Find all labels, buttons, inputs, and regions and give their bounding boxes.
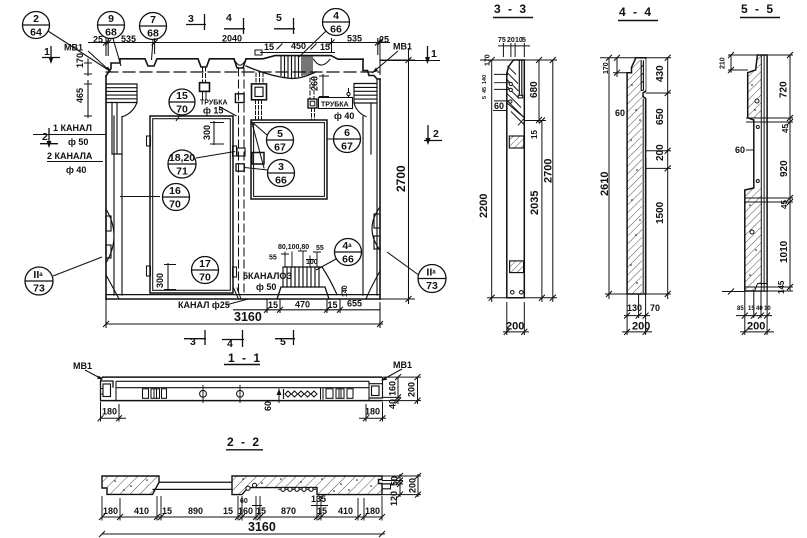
svg-text:МВ1: МВ1 xyxy=(73,361,92,371)
svg-text:МВ1: МВ1 xyxy=(393,42,412,52)
svg-text:535: 535 xyxy=(121,34,136,44)
svg-text:680: 680 xyxy=(529,81,540,98)
svg-text:70: 70 xyxy=(169,199,181,211)
svg-text:25: 25 xyxy=(93,35,103,45)
svg-text:3: 3 xyxy=(188,13,194,25)
svg-text:60: 60 xyxy=(735,145,745,155)
svg-text:15: 15 xyxy=(162,506,172,516)
svg-text:3: 3 xyxy=(190,336,196,348)
svg-text:200: 200 xyxy=(506,321,524,333)
svg-text:6: 6 xyxy=(344,127,350,139)
svg-text:170: 170 xyxy=(603,62,610,74)
svg-text:1: 1 xyxy=(44,46,50,58)
svg-text:15: 15 xyxy=(176,90,188,102)
svg-text:15: 15 xyxy=(530,130,539,139)
svg-text:1 - 1: 1 - 1 xyxy=(228,351,262,365)
svg-text:15: 15 xyxy=(268,300,278,310)
svg-text:2610: 2610 xyxy=(599,172,611,196)
svg-text:2200: 2200 xyxy=(478,194,490,218)
svg-text:60: 60 xyxy=(240,498,248,505)
svg-text:170: 170 xyxy=(485,54,492,66)
svg-text:МВ1: МВ1 xyxy=(393,360,412,370)
svg-text:465: 465 xyxy=(75,88,85,103)
svg-text:430: 430 xyxy=(655,65,666,82)
svg-text:4: 4 xyxy=(333,10,339,22)
svg-text:5: 5 xyxy=(276,12,282,24)
svg-text:1 КАНАЛ: 1 КАНАЛ xyxy=(53,123,92,133)
svg-text:1010: 1010 xyxy=(779,240,790,263)
svg-text:180: 180 xyxy=(102,407,117,417)
svg-text:40: 40 xyxy=(388,399,398,409)
svg-text:5: 5 xyxy=(482,96,488,99)
svg-text:140: 140 xyxy=(482,75,488,84)
svg-text:170: 170 xyxy=(75,53,85,68)
svg-text:66: 66 xyxy=(330,24,342,36)
svg-text:4: 4 xyxy=(226,12,232,24)
svg-text:25: 25 xyxy=(379,35,389,45)
svg-text:2035: 2035 xyxy=(529,191,541,215)
svg-text:210: 210 xyxy=(720,57,727,69)
svg-text:60: 60 xyxy=(494,101,504,111)
svg-text:3160: 3160 xyxy=(234,310,262,324)
svg-text:68: 68 xyxy=(105,27,117,39)
svg-text:450: 450 xyxy=(291,41,306,51)
svg-text:55: 55 xyxy=(269,255,277,262)
svg-text:920: 920 xyxy=(779,160,790,177)
svg-text:5КАНАЛОЗ: 5КАНАЛОЗ xyxy=(243,271,292,281)
svg-text:75: 75 xyxy=(498,37,506,44)
svg-text:3 - 3: 3 - 3 xyxy=(494,2,528,16)
svg-text:67: 67 xyxy=(341,141,353,153)
svg-text:IIa: IIa xyxy=(33,269,43,281)
svg-text:200: 200 xyxy=(632,321,650,333)
svg-text:85: 85 xyxy=(737,306,744,312)
svg-text:1500: 1500 xyxy=(655,201,666,224)
svg-text:15: 15 xyxy=(748,306,755,312)
svg-text:470: 470 xyxy=(295,300,310,310)
svg-text:73: 73 xyxy=(426,280,438,292)
svg-text:5: 5 xyxy=(277,128,283,140)
svg-text:15: 15 xyxy=(256,506,266,516)
svg-text:145: 145 xyxy=(777,280,786,294)
svg-text:2040: 2040 xyxy=(222,34,242,44)
svg-text:ф 40: ф 40 xyxy=(66,165,86,175)
svg-text:2: 2 xyxy=(33,13,39,25)
svg-text:15: 15 xyxy=(317,506,327,516)
svg-text:45: 45 xyxy=(780,200,789,209)
svg-text:68: 68 xyxy=(147,28,159,40)
svg-text:71: 71 xyxy=(176,166,188,178)
svg-text:64: 64 xyxy=(30,27,42,39)
svg-text:15: 15 xyxy=(320,42,330,52)
svg-text:20: 20 xyxy=(507,37,515,44)
svg-text:15: 15 xyxy=(223,506,233,516)
svg-text:18,20: 18,20 xyxy=(169,152,195,164)
svg-text:5: 5 xyxy=(522,37,526,44)
svg-text:120: 120 xyxy=(389,491,399,506)
svg-text:160: 160 xyxy=(388,381,398,396)
svg-text:66: 66 xyxy=(342,254,354,266)
svg-text:410: 410 xyxy=(338,506,353,516)
svg-text:2: 2 xyxy=(433,128,439,140)
svg-text:50: 50 xyxy=(390,476,400,486)
svg-text:180: 180 xyxy=(103,506,118,516)
svg-text:5: 5 xyxy=(280,336,286,348)
svg-text:300: 300 xyxy=(202,125,212,140)
svg-text:IIa: IIa xyxy=(426,267,436,279)
svg-text:4a: 4a xyxy=(342,240,352,252)
svg-text:200: 200 xyxy=(655,144,666,161)
svg-text:890: 890 xyxy=(188,506,203,516)
svg-text:40: 40 xyxy=(756,306,763,312)
svg-text:3160: 3160 xyxy=(248,520,276,534)
svg-text:КАНАЛ ф25: КАНАЛ ф25 xyxy=(178,300,230,310)
svg-text:870: 870 xyxy=(281,506,296,516)
svg-text:2 - 2: 2 - 2 xyxy=(227,435,261,449)
svg-text:55: 55 xyxy=(316,245,324,252)
svg-text:2700: 2700 xyxy=(543,159,555,183)
svg-text:180: 180 xyxy=(365,506,380,516)
svg-text:140: 140 xyxy=(342,285,349,297)
svg-text:2700: 2700 xyxy=(394,165,408,192)
svg-text:200: 200 xyxy=(407,382,417,397)
svg-text:1: 1 xyxy=(431,48,437,60)
svg-text:ф 50: ф 50 xyxy=(68,137,88,147)
svg-text:535: 535 xyxy=(347,34,362,44)
svg-text:200: 200 xyxy=(747,321,765,333)
svg-text:67: 67 xyxy=(274,142,286,154)
svg-text:16: 16 xyxy=(169,185,181,197)
svg-text:17: 17 xyxy=(199,258,211,270)
svg-text:73: 73 xyxy=(33,283,45,295)
svg-text:70: 70 xyxy=(650,303,660,313)
svg-text:15: 15 xyxy=(328,300,338,310)
svg-text:650: 650 xyxy=(655,108,666,125)
svg-text:7: 7 xyxy=(150,14,156,26)
svg-text:45: 45 xyxy=(781,124,790,133)
svg-text:160: 160 xyxy=(238,506,253,516)
svg-text:130: 130 xyxy=(627,303,642,313)
svg-text:70: 70 xyxy=(176,104,188,116)
svg-text:410: 410 xyxy=(134,506,149,516)
svg-text:300: 300 xyxy=(155,273,165,288)
svg-text:60: 60 xyxy=(615,108,625,118)
svg-text:2 КАНАЛА: 2 КАНАЛА xyxy=(47,151,93,161)
svg-text:655: 655 xyxy=(347,299,362,309)
svg-text:60: 60 xyxy=(263,401,273,411)
svg-text:ТРУБКА: ТРУБКА xyxy=(321,102,349,109)
svg-text:ф 50: ф 50 xyxy=(256,282,276,292)
svg-text:10: 10 xyxy=(764,306,771,312)
svg-text:260: 260 xyxy=(310,76,320,91)
svg-text:4 - 4: 4 - 4 xyxy=(619,5,653,19)
svg-text:100: 100 xyxy=(306,259,318,266)
svg-text:15: 15 xyxy=(264,42,274,52)
svg-text:180: 180 xyxy=(365,407,380,417)
svg-text:720: 720 xyxy=(779,81,790,98)
svg-text:66: 66 xyxy=(275,175,287,187)
svg-text:135: 135 xyxy=(311,494,326,504)
svg-text:5 - 5: 5 - 5 xyxy=(741,2,775,16)
svg-text:ф 40: ф 40 xyxy=(334,111,354,121)
svg-text:80,100,80: 80,100,80 xyxy=(278,244,309,251)
svg-text:200: 200 xyxy=(408,478,418,493)
svg-text:9: 9 xyxy=(108,13,114,25)
svg-text:3: 3 xyxy=(278,161,284,173)
svg-text:70: 70 xyxy=(199,272,211,284)
svg-text:45: 45 xyxy=(482,87,488,93)
